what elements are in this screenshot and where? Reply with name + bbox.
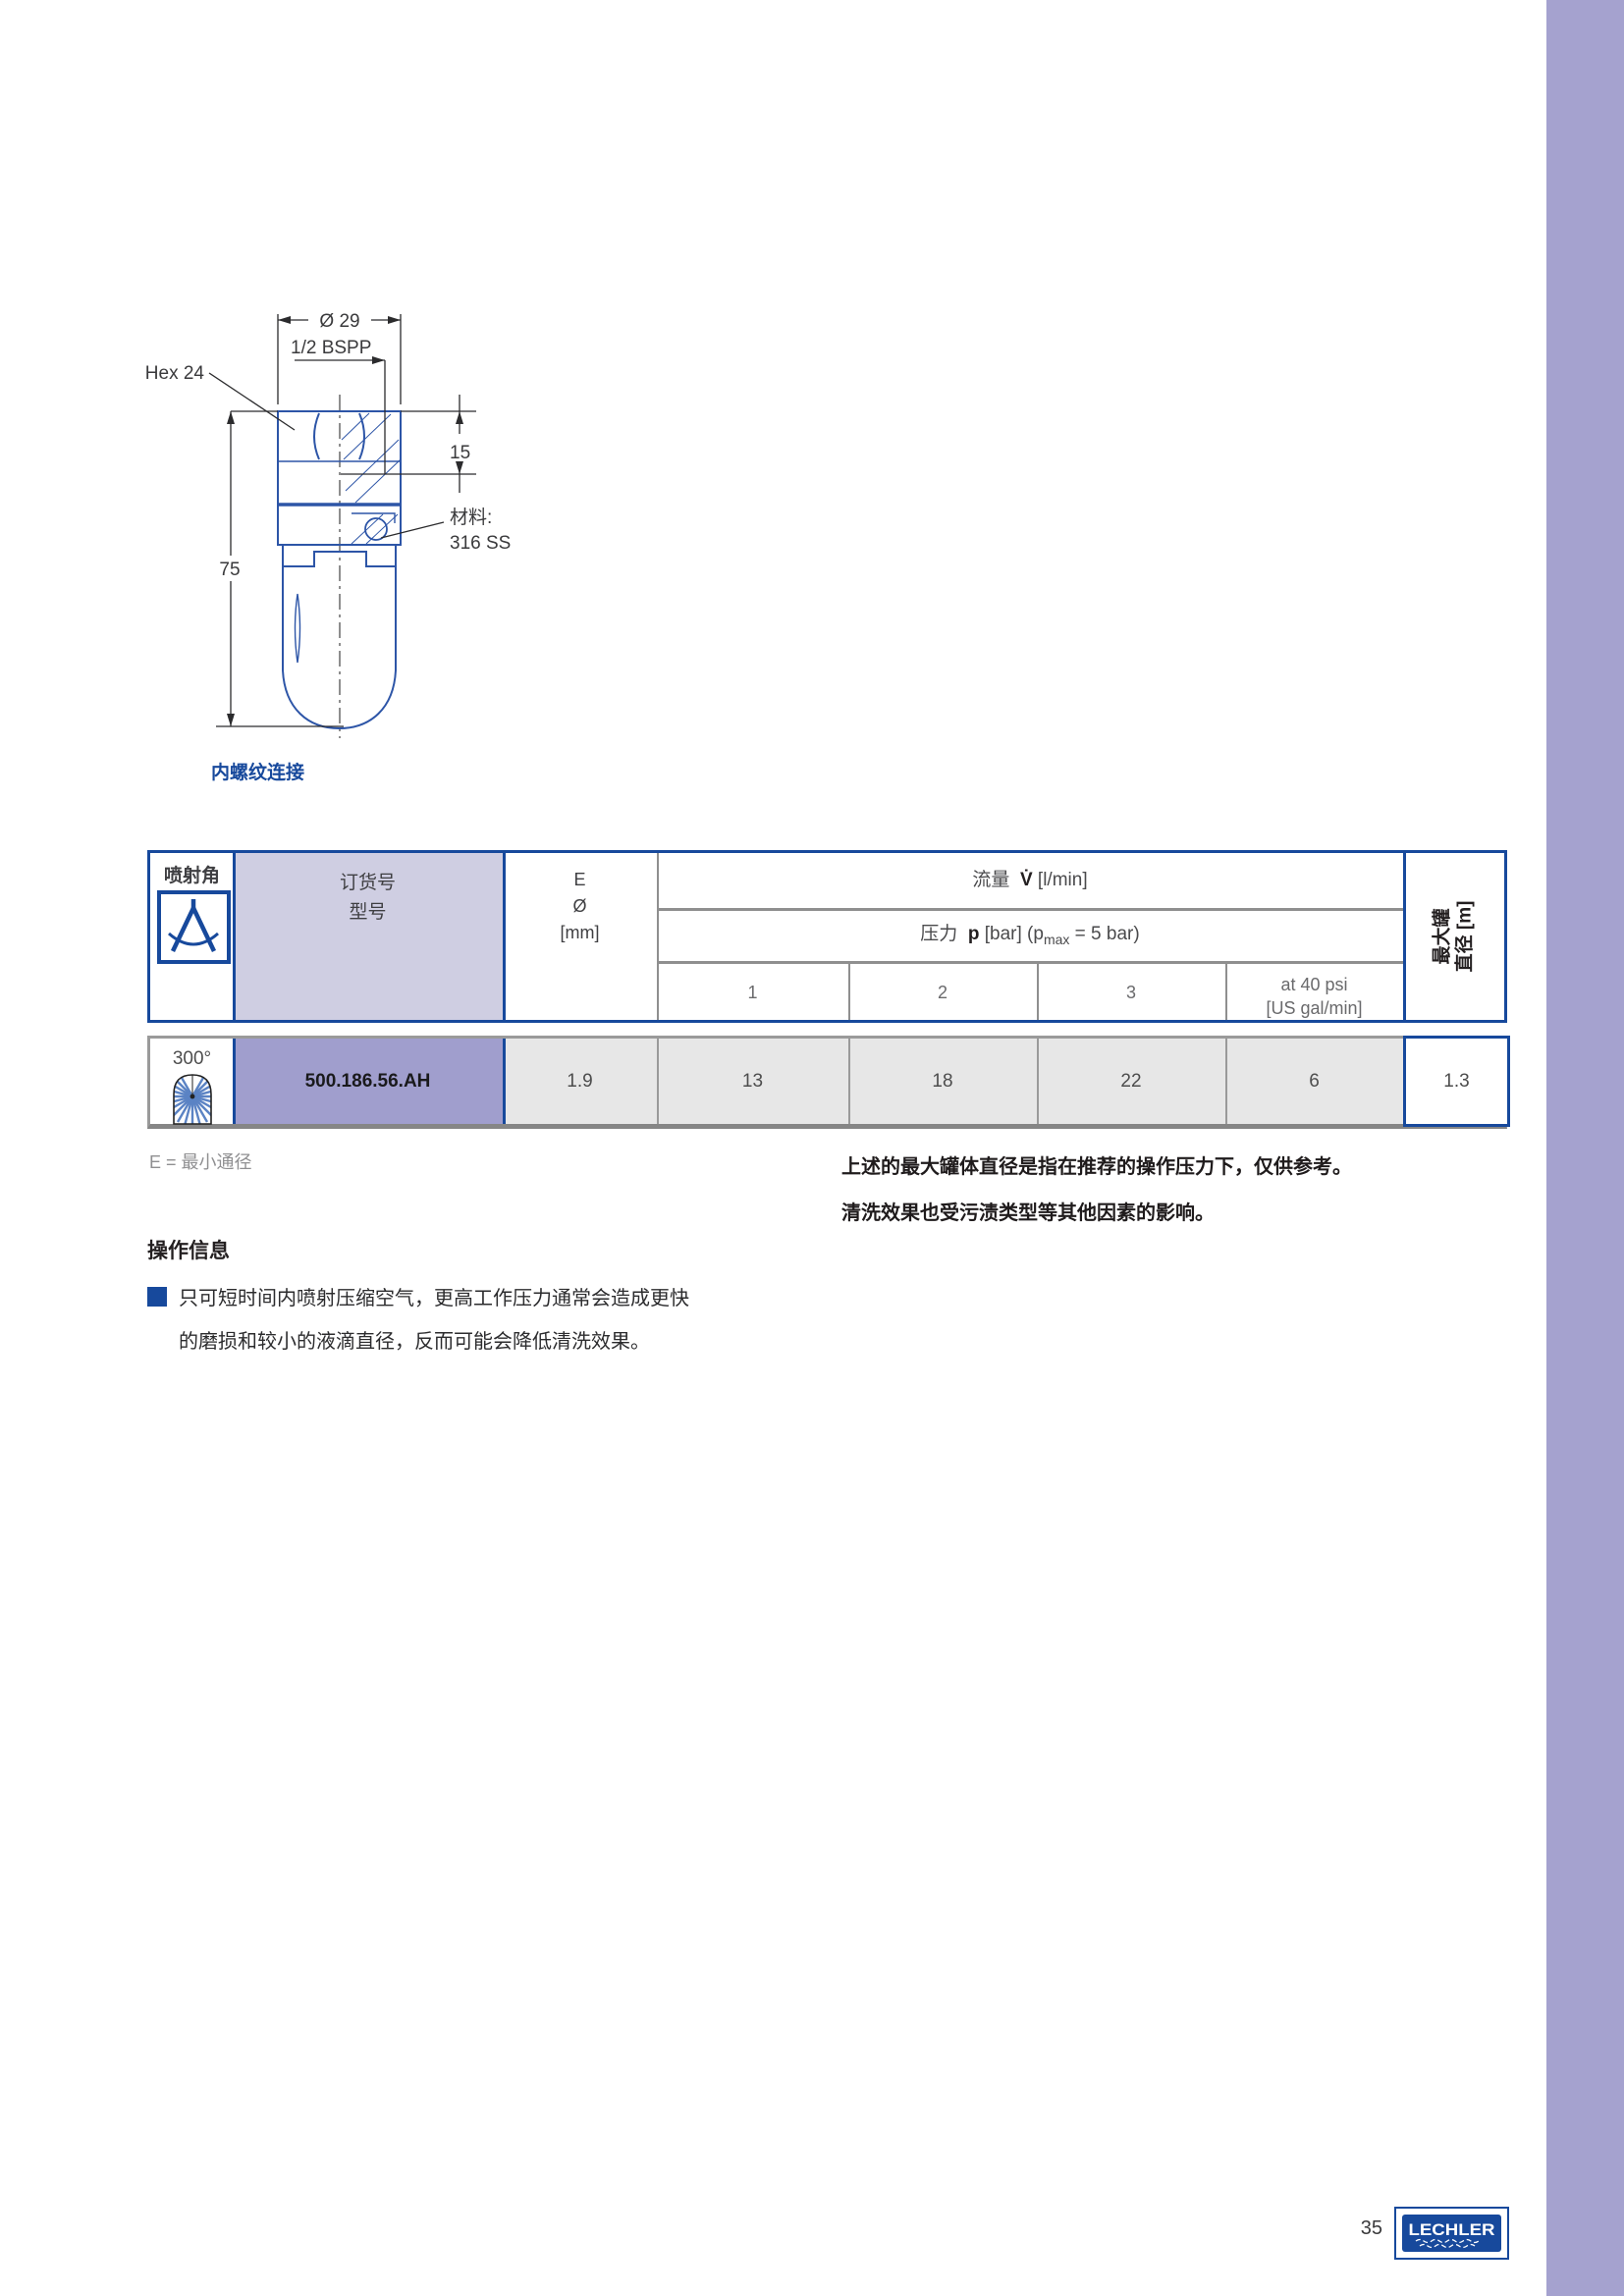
dimension-arrows (227, 316, 463, 726)
header-pressure: 压力 p [bar] (pmax = 5 bar) (657, 908, 1403, 961)
spray-pattern-icon (171, 1071, 214, 1126)
row-e-mm: 1.9 (503, 1039, 657, 1124)
table-row: 300° 500.186.56.AH 1.9 13 (147, 1036, 1507, 1129)
spec-table-header: 喷射角 订货号 型号 E Ø [m (147, 850, 1507, 1023)
catalog-page: Ø 29 1/2 BSPP Hex 24 15 75 材料: 316 SS 内螺… (0, 0, 1624, 2296)
header-col-1bar: 1 (657, 963, 848, 1023)
header-tank-diameter: 最大罐 直径 [m] (1403, 853, 1504, 1020)
header-col-3bar: 3 (1037, 963, 1225, 1023)
tank-line1: 最大罐 (1431, 901, 1453, 973)
flow-label: 流量 (972, 870, 1009, 890)
tank-note-line2: 清洗效果也受污渍类型等其他因素的影响。 (841, 1191, 1352, 1237)
header-spray-angle: 喷射角 (150, 861, 234, 887)
header-order-no: 订货号 (233, 869, 503, 898)
logo-text: LECHLER (1409, 2220, 1495, 2239)
nozzle-technical-drawing: Ø 29 1/2 BSPP Hex 24 15 75 材料: 316 SS (98, 285, 530, 795)
tank-note-line1: 上述的最大罐体直径是指在推荐的操作压力下，仅供参考。 (841, 1145, 1352, 1191)
dim-thread-label: 1/2 BSPP (291, 338, 371, 358)
pressure-suffix: = 5 bar) (1069, 924, 1139, 944)
side-color-band (1546, 0, 1624, 2296)
operation-line1: 只可短时间内喷射压缩空气，更高工作压力通常会造成更快 (179, 1282, 689, 1310)
header-e-dia: Ø (503, 893, 657, 920)
pressure-symbol: p (968, 924, 980, 944)
row-spray-angle: 300° (150, 1048, 234, 1070)
row-tank-diameter: 1.3 (1403, 1036, 1510, 1127)
psi-line1: at 40 psi (1225, 973, 1403, 996)
header-col-2bar: 2 (848, 963, 1037, 1023)
page-number: 35 (1343, 2217, 1382, 2240)
pressure-sub: max (1044, 932, 1069, 947)
flow-symbol: V̇ (1020, 870, 1033, 890)
operation-line2: 的磨损和较小的液滴直径，反而可能会降低清洗效果。 (179, 1325, 650, 1354)
psi-line2: [US gal/min] (1225, 996, 1403, 1020)
tank-diameter-note: 上述的最大罐体直径是指在推荐的操作压力下，仅供参考。 清洗效果也受污渍类型等其他… (841, 1145, 1352, 1237)
row-flow-3bar: 22 (1037, 1039, 1225, 1124)
header-col-40psi: at 40 psi [US gal/min] (1225, 963, 1403, 1023)
dim-height-label: 75 (219, 560, 240, 580)
tank-line2: 直径 [m] (1453, 901, 1476, 973)
header-e-unit: [mm] (503, 920, 657, 946)
material-label: 材料: (450, 507, 492, 528)
e-note: E = 最小通径 (149, 1148, 252, 1174)
row-flow-2bar: 18 (848, 1039, 1037, 1124)
angle-icon (157, 890, 231, 964)
header-type: 型号 (233, 898, 503, 928)
header-flow: 流量 V̇ [l/min] (657, 853, 1403, 908)
material-value: 316 SS (450, 533, 511, 554)
lechler-logo: LECHLER (1394, 2207, 1509, 2260)
dimension-lines (209, 314, 476, 726)
operation-info-title: 操作信息 (147, 1235, 230, 1264)
bullet-square (147, 1287, 167, 1307)
pressure-label: 压力 (920, 924, 957, 944)
dim-depth-label: 15 (450, 443, 470, 463)
dim-diameter-label: Ø 29 (319, 311, 359, 332)
spec-table: 喷射角 订货号 型号 E Ø [m (147, 850, 1507, 1135)
row-flow-1bar: 13 (657, 1039, 848, 1124)
header-e: E (503, 867, 657, 893)
flow-unit: [l/min] (1038, 870, 1088, 890)
dim-hex-label: Hex 24 (145, 363, 205, 384)
dimension-labels: Ø 29 1/2 BSPP Hex 24 15 75 材料: 316 SS (145, 311, 512, 580)
row-flow-40psi: 6 (1225, 1039, 1403, 1124)
drawing-caption: 内螺纹连接 (211, 758, 304, 784)
pressure-bracket: [bar] (p (985, 924, 1044, 944)
row-order-no: 500.186.56.AH (233, 1039, 503, 1124)
